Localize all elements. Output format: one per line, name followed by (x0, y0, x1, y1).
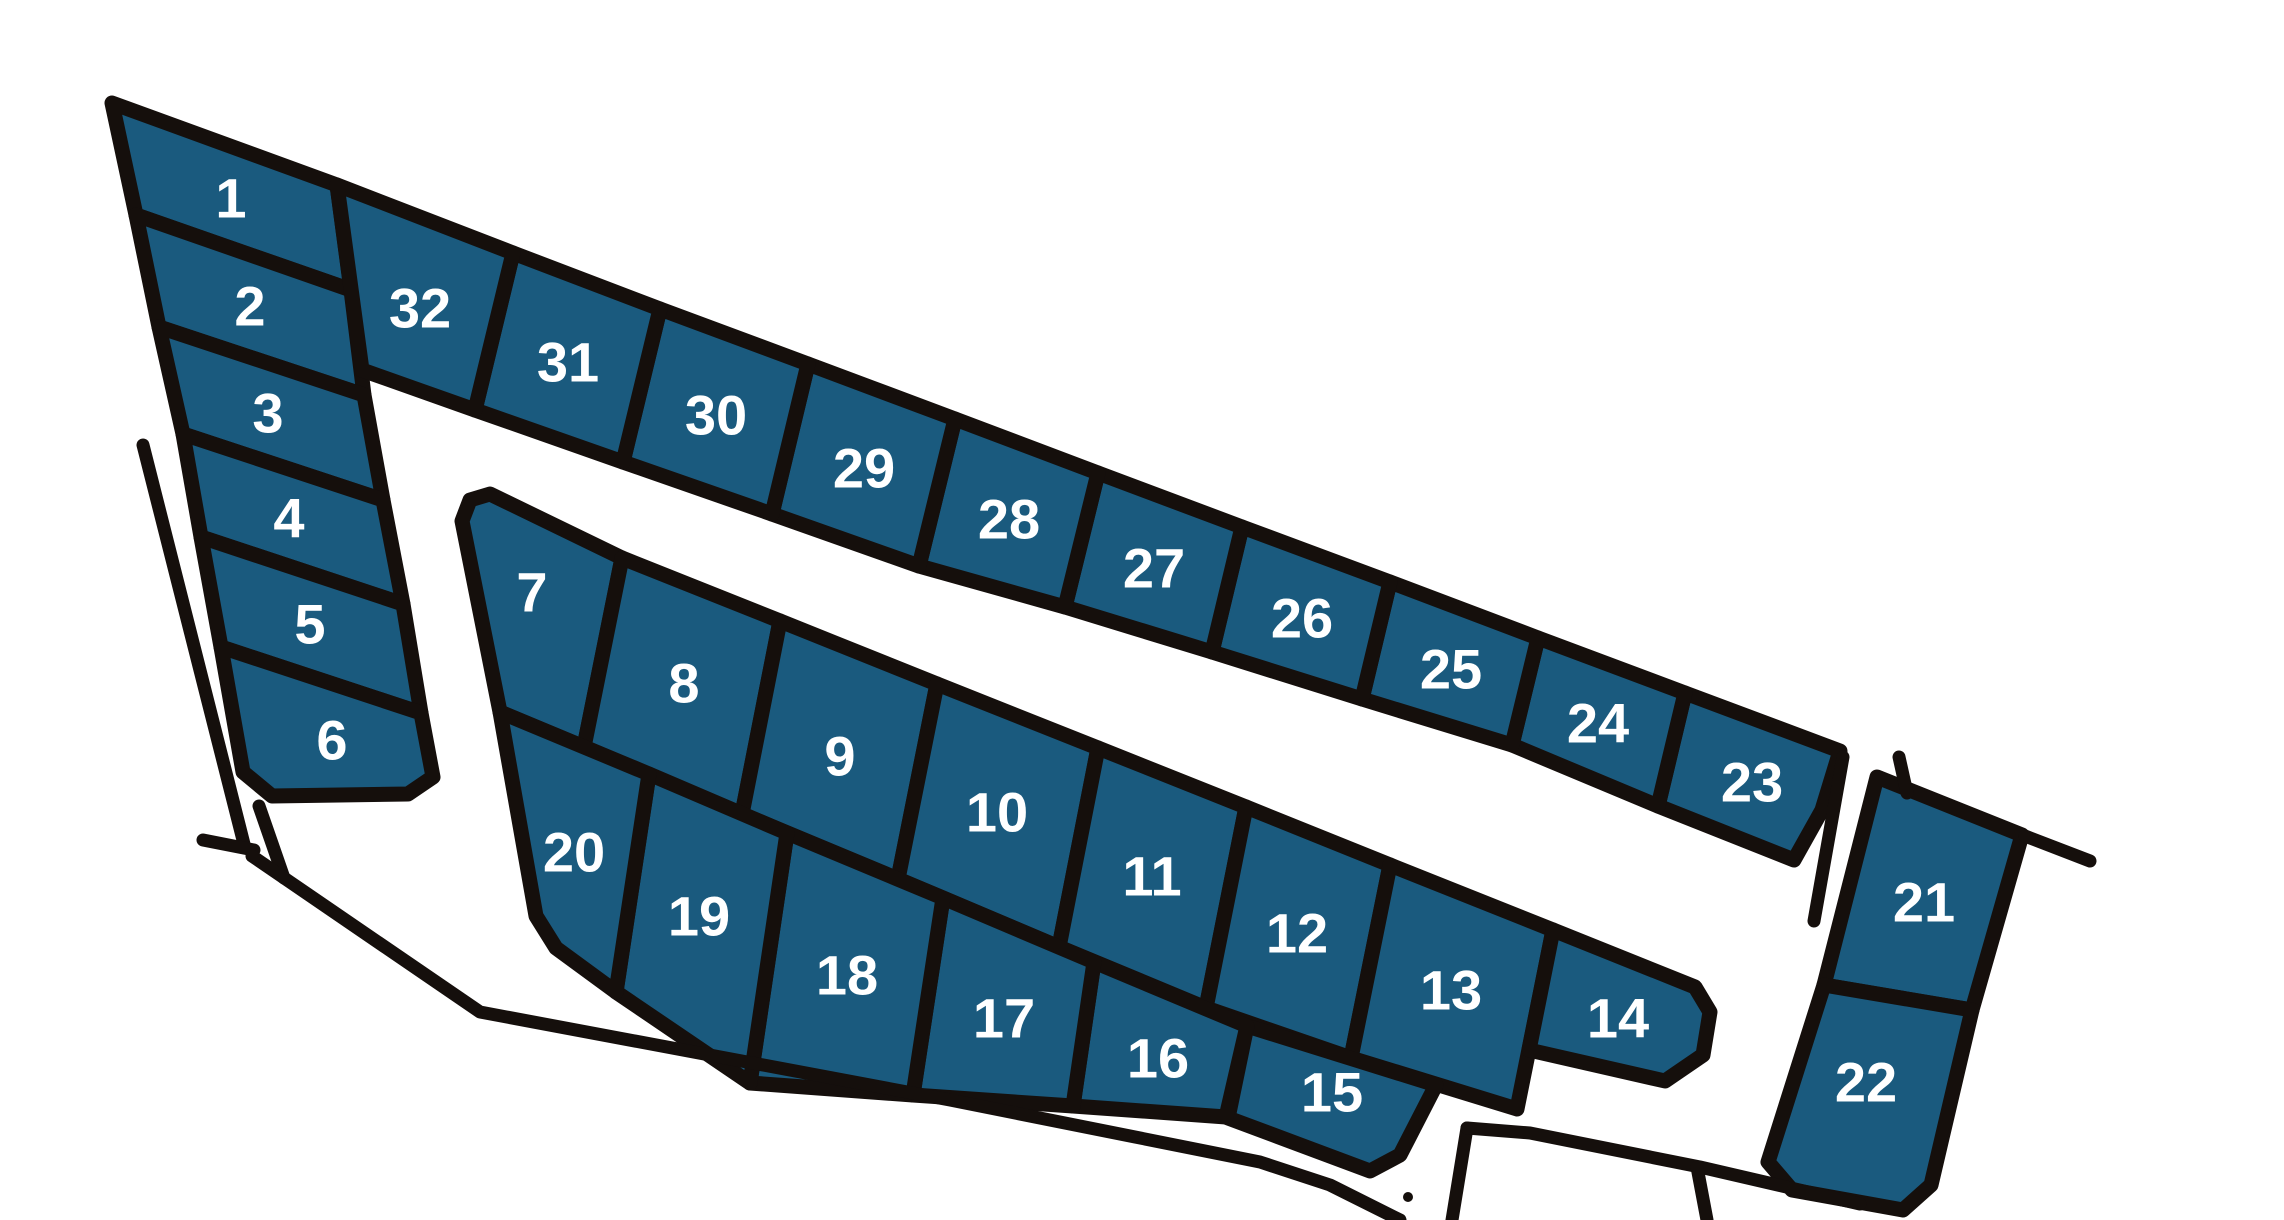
road-stub-above-21 (1899, 757, 1907, 793)
road-ext-from-21 (2025, 836, 2090, 861)
lot-21[interactable] (1824, 777, 2022, 1010)
lot-14[interactable] (1529, 930, 1710, 1081)
road-exit-west (1452, 1128, 1467, 1220)
road-exit-stub (1697, 1167, 1707, 1220)
lot-32[interactable] (337, 185, 513, 410)
plat-map-svg: 1234567891011121314151617181920212223242… (0, 0, 2284, 1220)
plat-map: 1234567891011121314151617181920212223242… (0, 0, 2284, 1220)
survey-marker (1403, 1192, 1413, 1202)
lot-22[interactable] (1768, 985, 1972, 1210)
